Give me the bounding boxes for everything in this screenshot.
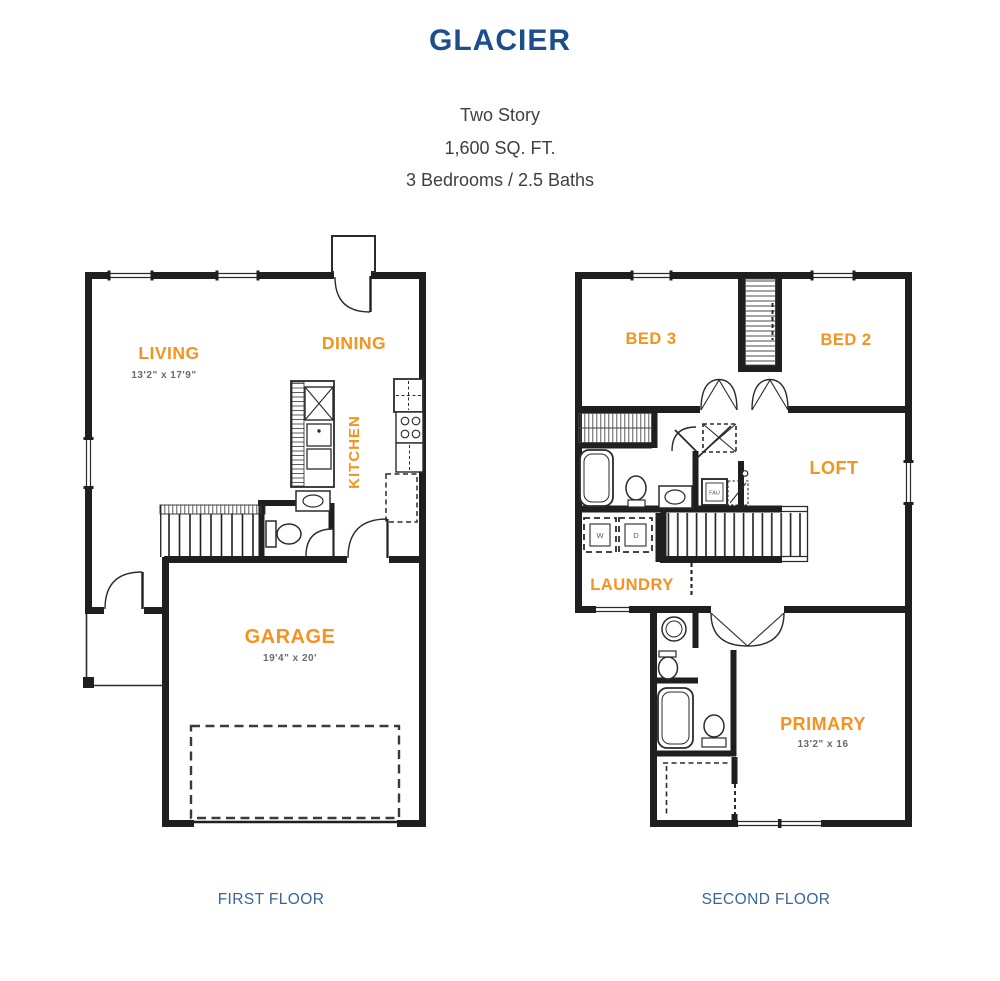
burner [401,430,409,438]
toilet-bowl [659,657,678,679]
subtitle-beds-baths: 3 Bedrooms / 2.5 Baths [0,164,1000,197]
room-label-living: LIVING [138,343,199,363]
toilet-base [628,500,645,507]
first-floor-caption: FIRST FLOOR [151,891,391,909]
closet-shelves [746,279,776,365]
door-leaf [711,613,784,646]
sink-basin [665,490,685,504]
burner [401,417,409,425]
stair-landing [160,505,265,514]
room-label-dining: DINING [322,333,386,353]
window [904,460,914,505]
window [631,271,673,281]
room-label-laundry: LAUNDRY [590,576,674,594]
subtitle-stories: Two Story [0,99,1000,132]
room-label-garage: GARAGE [245,626,336,648]
dishwasher [307,424,331,446]
sink-basin-inner [666,621,682,637]
pantry [386,474,417,522]
toilet-bowl [626,476,646,500]
room-dims-garage: 19'4" x 20' [263,653,317,664]
stair-treads [161,514,265,557]
room-label-loft: LOFT [810,458,859,478]
pedestal-base [702,738,726,747]
walk-in-closet [663,763,731,816]
stove [396,412,423,443]
door-opening [334,271,371,281]
toilet-tank [659,651,676,657]
linen-closet [578,414,652,443]
stair-treads [666,513,807,557]
closet-shelf-dashed [663,763,731,816]
bedroom-closet [746,279,776,365]
garage-door-dashed [191,726,399,818]
room-label-bed2: BED 2 [820,331,871,349]
second-floor-caption: SECOND FLOOR [646,891,886,909]
toilet-tank [266,521,276,547]
window [596,606,629,614]
burner [412,430,420,438]
door-arc [348,519,387,558]
window [108,271,154,281]
plan-subtitle: Two Story 1,600 SQ. FT. 3 Bedrooms / 2.5… [0,99,1000,197]
disposal-dot [317,429,320,432]
bedroom-doors [701,380,788,411]
porch-outline [87,614,165,686]
door-leaf [752,380,788,410]
door-arc [711,613,784,646]
primary-doors [711,613,784,814]
door-arc [701,380,737,411]
page-title: GLACIER [0,24,1000,58]
window [738,819,821,828]
room-label-bed3: BED 3 [625,330,676,348]
staircase [160,505,265,557]
window [216,271,260,281]
fau-label: FAU [709,491,720,497]
room-dims-primary: 13'2" x 16 [797,739,848,750]
door-arc [105,572,142,609]
sink-basin [303,495,323,507]
room-dims-living: 13'2" x 17'9" [131,370,196,381]
door-arc [752,380,788,411]
front-entry [332,236,375,312]
pedestal-sink [704,715,724,737]
counter-hatch [292,382,304,486]
front-stoop [332,236,375,272]
room-label-kitchen: KITCHEN [346,415,363,489]
door-leaf [675,430,697,452]
window [811,271,856,281]
dryer-label: D [633,531,639,540]
door-arc [335,277,370,312]
fixture-dot [742,471,748,477]
washer-label: W [596,531,604,540]
bathtub-inner [662,692,689,744]
subtitle-sqft: 1,600 SQ. FT. [0,132,1000,165]
burner [412,417,420,425]
toilet-bowl [277,524,301,544]
cabinet [307,449,331,469]
garage-hall-door [348,519,388,558]
staircase [666,506,808,562]
bathtub-inner [584,454,609,502]
room-label-primary: PRIMARY [780,714,866,734]
window [84,437,94,489]
door-arc [306,529,333,556]
porch-post [83,677,94,688]
floorplan-page: GLACIER Two Story 1,600 SQ. FT. 3 Bedroo… [0,0,1000,981]
side-entry-door [105,572,143,609]
first-floor-plan: LIVING 13'2" x 17'9" DINING KITCHEN GARA… [70,225,445,845]
second-floor-plan: BED 3 BED 2 LOFT LAUNDRY PRIMARY 13'2" x… [555,255,930,845]
door-leaf [701,380,737,410]
